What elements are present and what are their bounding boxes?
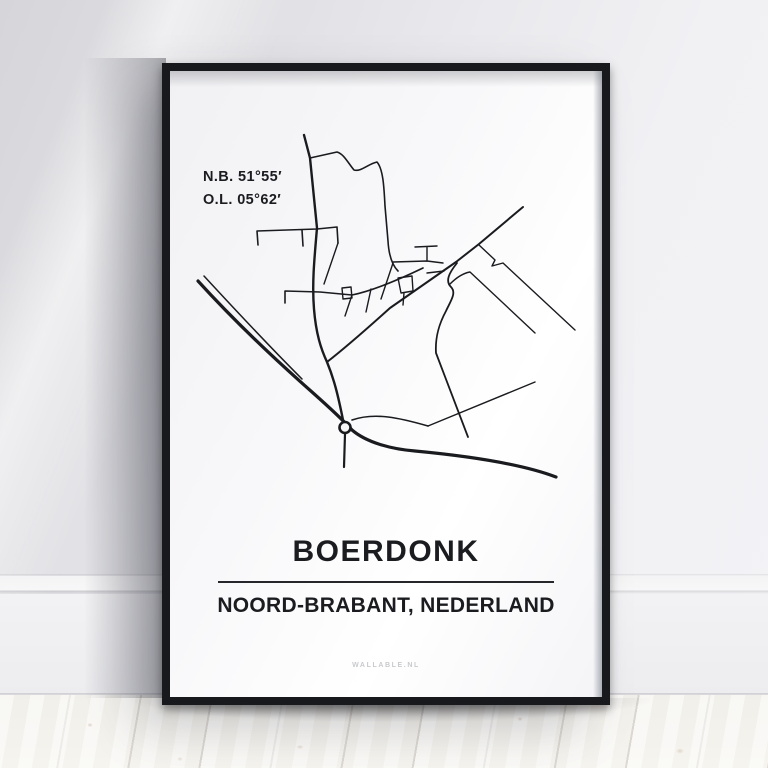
road xyxy=(415,246,437,261)
title-divider xyxy=(218,581,554,583)
longitude-label: O.L. 05°62′ xyxy=(203,189,282,212)
poster-paper: N.B. 51°55′ O.L. 05°62′ BOERDONK NOORD-B… xyxy=(170,71,602,697)
latitude-label: N.B. 51°55′ xyxy=(203,166,282,189)
road xyxy=(257,227,338,246)
road xyxy=(344,434,345,467)
road xyxy=(285,268,423,303)
road xyxy=(342,287,352,299)
road xyxy=(304,135,343,420)
road xyxy=(198,281,556,477)
poster-frame: N.B. 51°55′ O.L. 05°62′ BOERDONK NOORD-B… xyxy=(162,63,610,705)
road xyxy=(428,382,535,426)
road xyxy=(327,207,523,362)
road xyxy=(393,261,444,273)
poster-title: BOERDONK xyxy=(170,535,602,569)
road xyxy=(324,243,338,284)
roundabout-icon xyxy=(340,422,351,433)
road xyxy=(479,245,575,330)
brand-label: WALLABLE.NL xyxy=(170,662,602,669)
coordinates-block: N.B. 51°55′ O.L. 05°62′ xyxy=(203,166,282,212)
road xyxy=(345,263,393,316)
road xyxy=(352,416,428,426)
road xyxy=(310,152,398,271)
frame-shadow-on-wall xyxy=(84,58,166,698)
scene: N.B. 51°55′ O.L. 05°62′ BOERDONK NOORD-B… xyxy=(0,0,768,768)
poster-subtitle: NOORD-BRABANT, NEDERLAND xyxy=(170,594,602,618)
